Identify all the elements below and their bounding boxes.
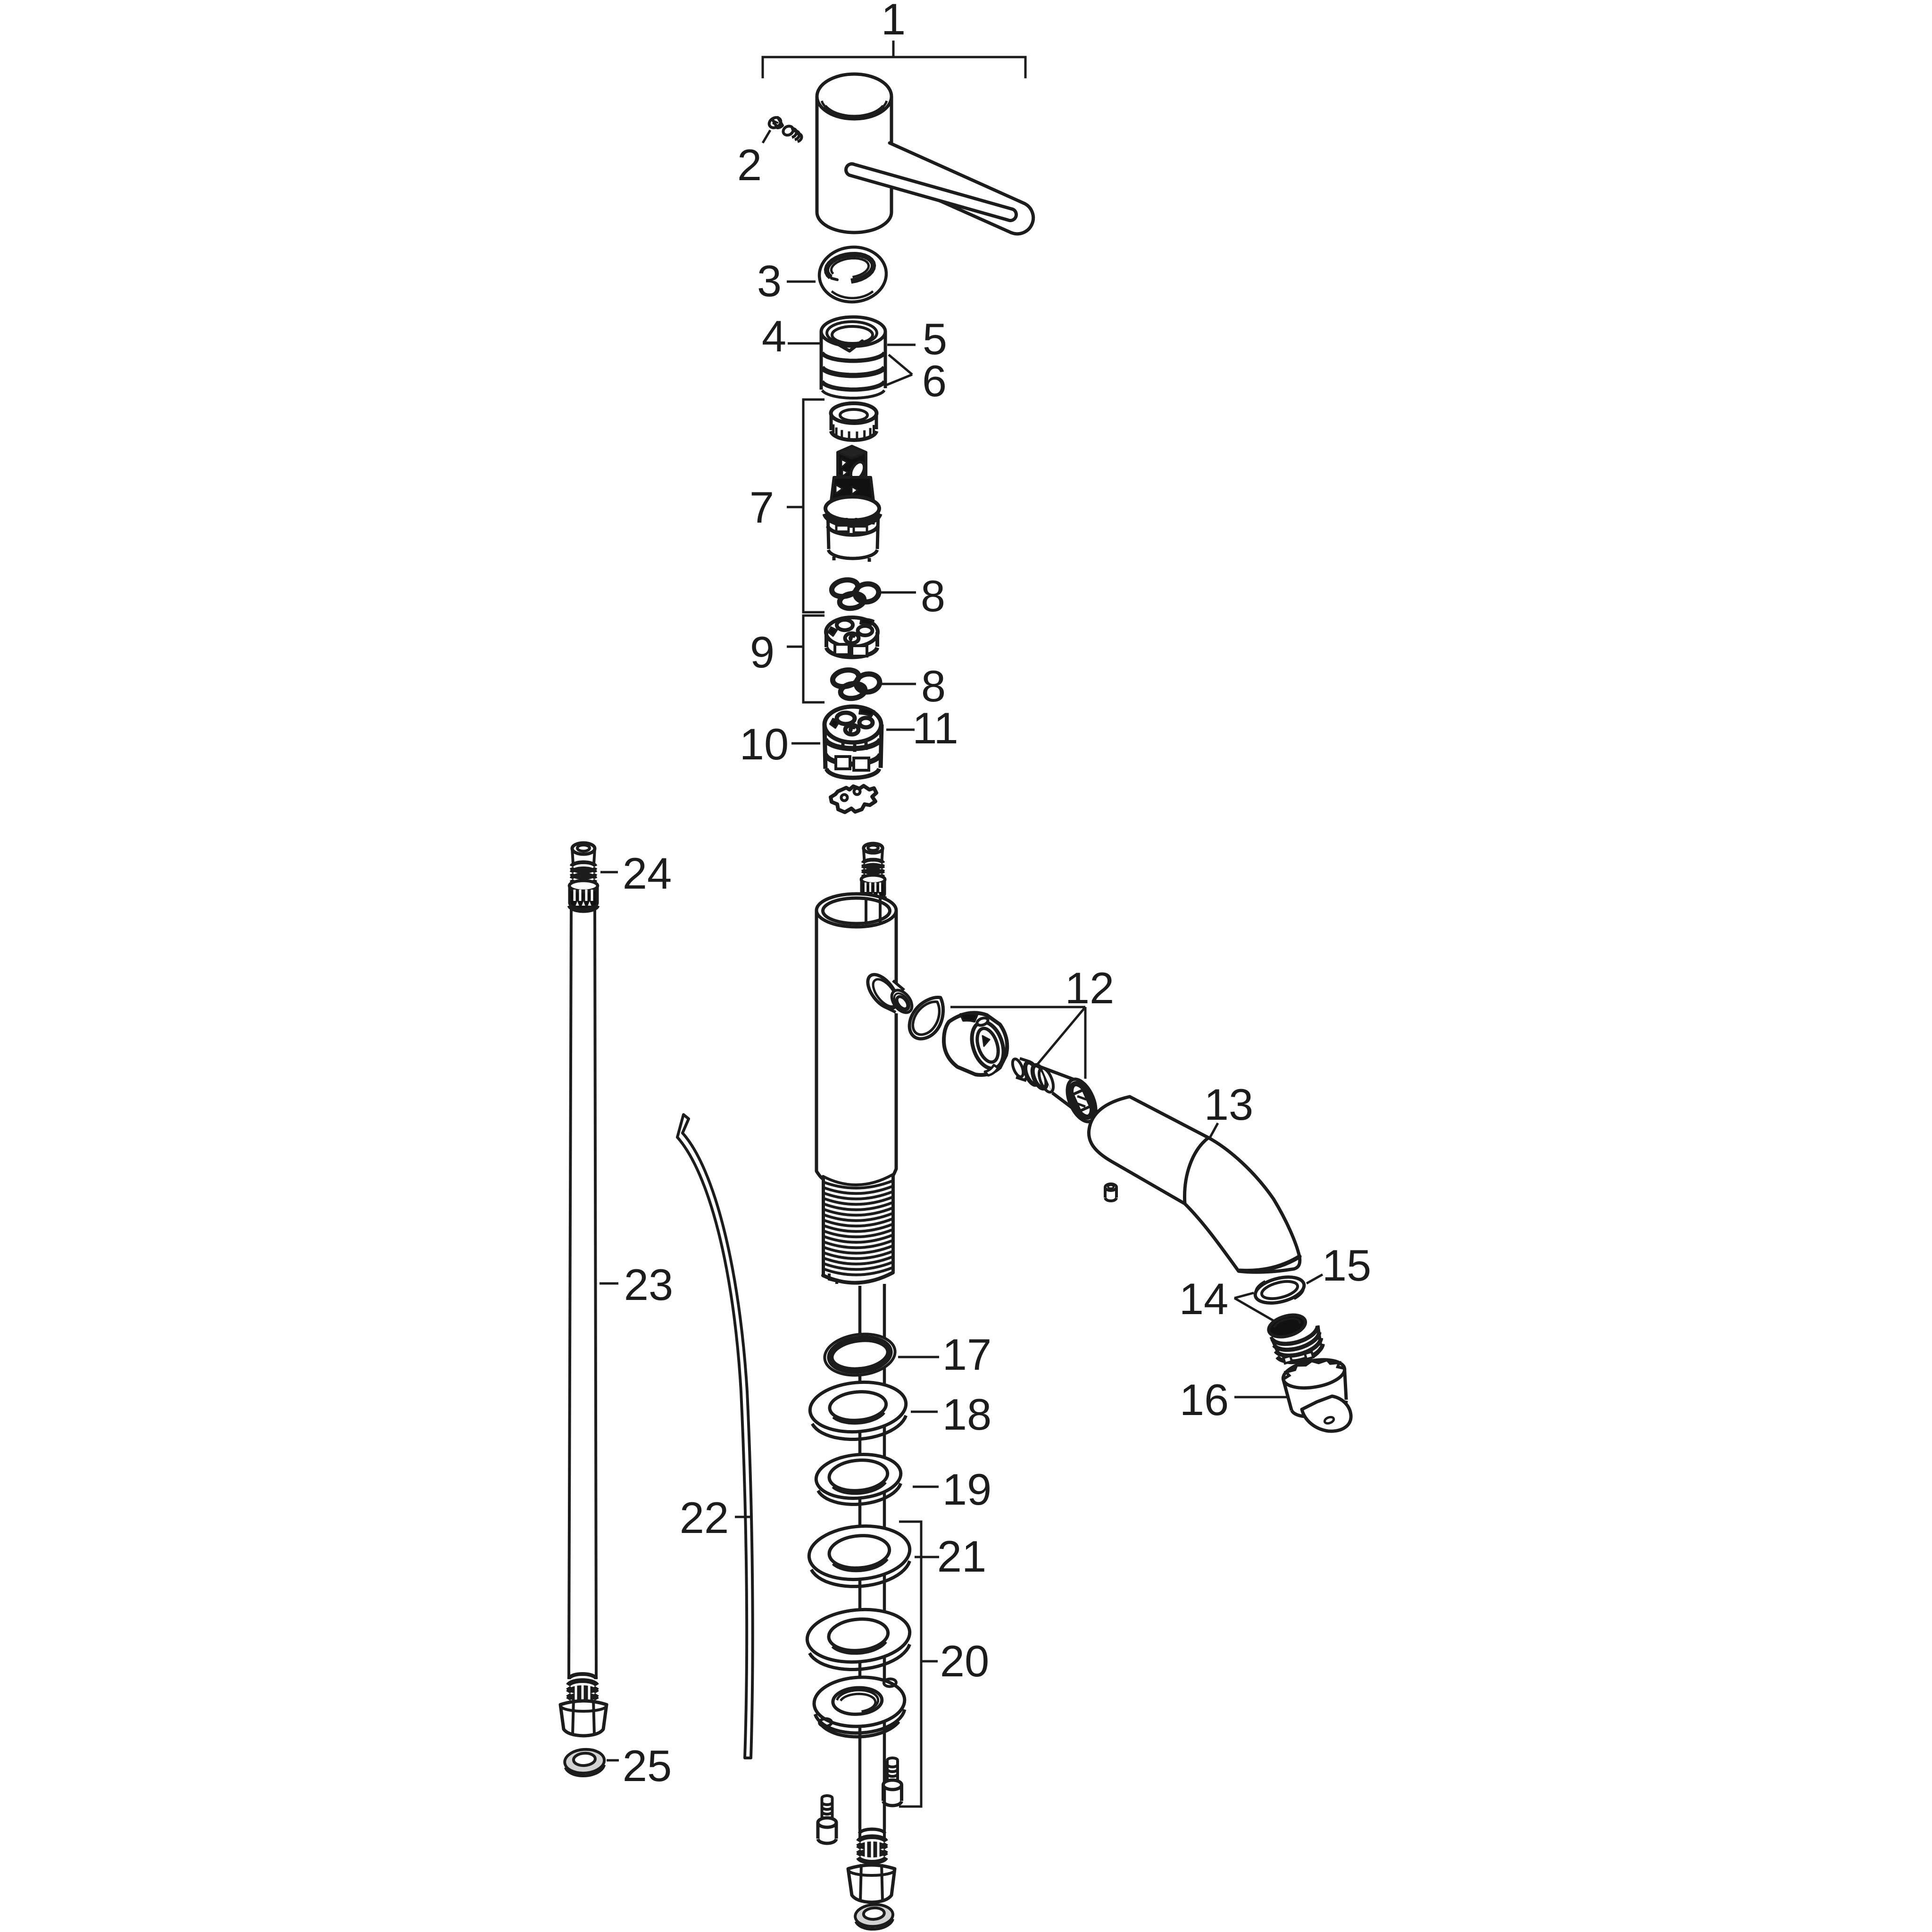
svg-text:19: 19: [942, 1465, 992, 1514]
svg-text:25: 25: [623, 1741, 672, 1790]
svg-text:18: 18: [942, 1390, 992, 1439]
svg-text:1: 1: [881, 0, 906, 44]
svg-text:13: 13: [1204, 1080, 1254, 1129]
svg-text:15: 15: [1322, 1241, 1372, 1290]
svg-text:3: 3: [757, 256, 782, 306]
svg-text:11: 11: [912, 703, 958, 753]
svg-text:16: 16: [1180, 1375, 1229, 1424]
svg-text:20: 20: [940, 1636, 990, 1686]
svg-text:4: 4: [762, 311, 786, 361]
svg-text:2: 2: [737, 140, 762, 190]
svg-text:9: 9: [750, 627, 774, 677]
svg-text:23: 23: [624, 1260, 674, 1309]
svg-text:21: 21: [937, 1532, 987, 1581]
svg-text:14: 14: [1179, 1274, 1229, 1324]
svg-text:12: 12: [1065, 963, 1115, 1013]
svg-text:22: 22: [680, 1493, 729, 1542]
svg-text:7: 7: [749, 483, 774, 532]
svg-text:8: 8: [921, 571, 945, 621]
svg-text:17: 17: [942, 1330, 992, 1379]
svg-text:6: 6: [922, 356, 947, 406]
svg-text:10: 10: [740, 719, 789, 769]
svg-text:24: 24: [623, 849, 672, 898]
